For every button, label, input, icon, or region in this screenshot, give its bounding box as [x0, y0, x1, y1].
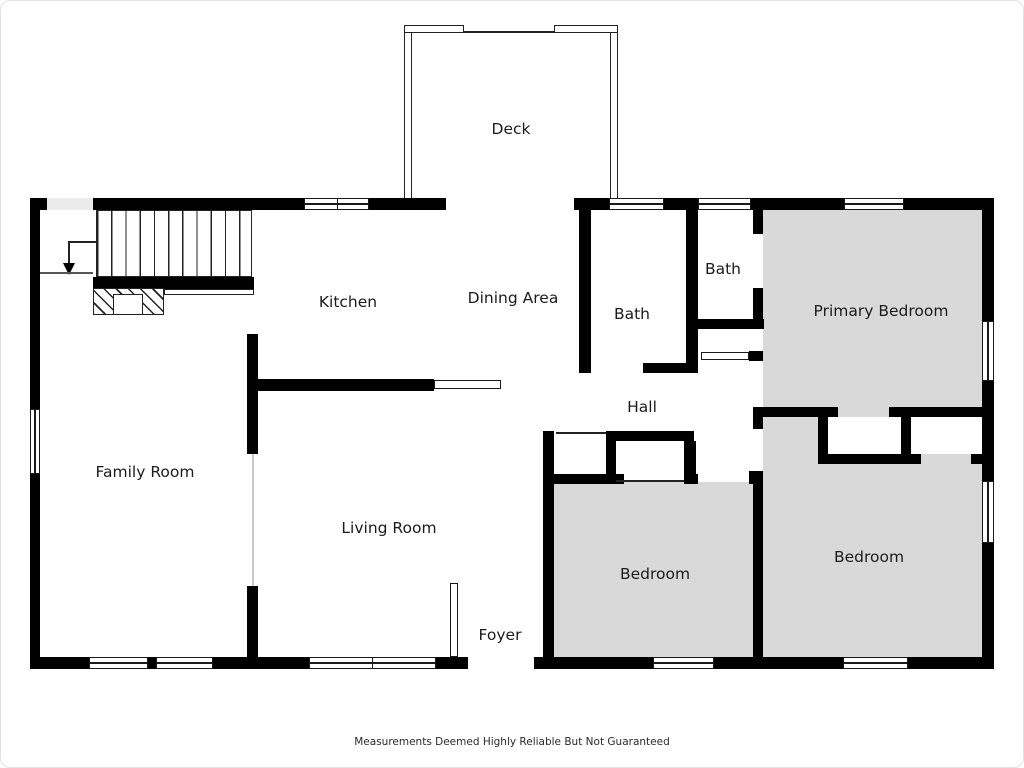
window — [653, 657, 714, 669]
cased-opening — [701, 352, 749, 360]
closet-wall — [684, 441, 696, 474]
room-label-living-room: Living Room — [341, 519, 436, 537]
wall-stub — [684, 474, 698, 484]
cased-opening — [434, 380, 501, 389]
window — [698, 198, 751, 210]
window — [982, 321, 994, 381]
deck-rail-right — [610, 25, 618, 199]
room-label-bedroom-right: Bedroom — [834, 548, 904, 566]
deck-rail-top-right — [554, 25, 618, 33]
stair-hatch-inset — [113, 294, 143, 315]
closet-wall — [606, 441, 616, 484]
right-bedroom-closet-interior — [911, 417, 982, 454]
exterior-wall-top — [664, 198, 698, 210]
exterior-wall-top — [369, 198, 446, 210]
room-label-bath-hall: Bath — [614, 305, 650, 323]
window — [843, 657, 908, 669]
deck-rail-top-left — [404, 25, 464, 33]
room-label-dining-area: Dining Area — [468, 289, 559, 307]
interior-wall — [256, 379, 434, 391]
closet-opening-line — [556, 432, 606, 434]
room-label-deck: Deck — [492, 120, 531, 138]
staircase — [96, 210, 252, 277]
exterior-wall-top — [751, 198, 844, 210]
wall-stub — [749, 471, 763, 484]
closet-wall — [606, 431, 694, 441]
interior-wall — [753, 471, 763, 657]
stairs-down-arrow-icon — [69, 241, 98, 243]
bedroom-wall — [543, 431, 554, 657]
window — [844, 198, 904, 210]
hall-closet-interior — [554, 434, 606, 474]
middle-bedroom-closet-interior — [616, 441, 684, 480]
window — [89, 657, 148, 669]
room-label-bedroom-middle: Bedroom — [620, 565, 690, 583]
floor-plan: Deck Kitchen Dining Area Bath Bath Prima… — [0, 0, 1024, 768]
exterior-wall-bottom — [534, 657, 653, 669]
exterior-wall-bottom — [714, 657, 843, 669]
exterior-wall-left — [30, 198, 40, 409]
bath-wall — [579, 210, 591, 373]
closet-opening-line — [616, 480, 684, 482]
bath-wall — [686, 210, 698, 373]
stair-lower-strip — [164, 289, 254, 295]
closet-wall — [818, 454, 921, 464]
closet-wall — [901, 417, 911, 454]
exterior-wall-bottom — [213, 657, 309, 669]
room-label-family-room: Family Room — [96, 463, 195, 481]
foyer-partition — [450, 583, 458, 657]
exterior-wall-right — [982, 381, 994, 481]
wall-stub — [753, 417, 763, 429]
stair-landing-gap — [47, 198, 93, 210]
bath-wall — [753, 210, 763, 234]
exterior-wall-bottom — [148, 657, 156, 669]
primary-closet-interior — [828, 417, 901, 454]
interior-wall — [247, 334, 258, 454]
exterior-wall-right — [982, 543, 994, 669]
room-label-bath-ensuite: Bath — [705, 260, 741, 278]
window — [982, 481, 994, 543]
room-label-hall: Hall — [627, 398, 657, 416]
room-label-foyer: Foyer — [479, 626, 522, 644]
window — [372, 657, 436, 669]
window — [609, 198, 664, 210]
disclaimer-text: Measurements Deemed Highly Reliable But … — [1, 736, 1023, 748]
deck-rail-left — [404, 25, 412, 199]
window — [304, 198, 338, 210]
stairs-down-arrow-icon — [68, 241, 70, 265]
exterior-wall-bottom — [436, 657, 468, 669]
exterior-wall-top — [904, 198, 994, 210]
bath-wall — [643, 363, 698, 373]
closet-wall — [971, 454, 982, 464]
exterior-wall-top — [574, 198, 609, 210]
exterior-wall-right — [982, 198, 994, 321]
bath-wall — [753, 288, 763, 329]
window — [156, 657, 213, 669]
room-label-kitchen: Kitchen — [319, 293, 377, 311]
deck-rail-top-middle — [463, 31, 555, 33]
wall-stub — [749, 351, 763, 361]
exterior-wall-left — [30, 474, 40, 669]
window — [30, 409, 40, 474]
stair-edge-line — [40, 272, 93, 274]
interior-wall — [247, 586, 258, 657]
room-label-primary-bedroom: Primary Bedroom — [814, 302, 949, 320]
exterior-wall-top — [93, 198, 304, 210]
window — [309, 657, 373, 669]
wide-opening-line — [252, 454, 254, 586]
interior-wall — [889, 407, 994, 417]
window — [337, 198, 369, 210]
